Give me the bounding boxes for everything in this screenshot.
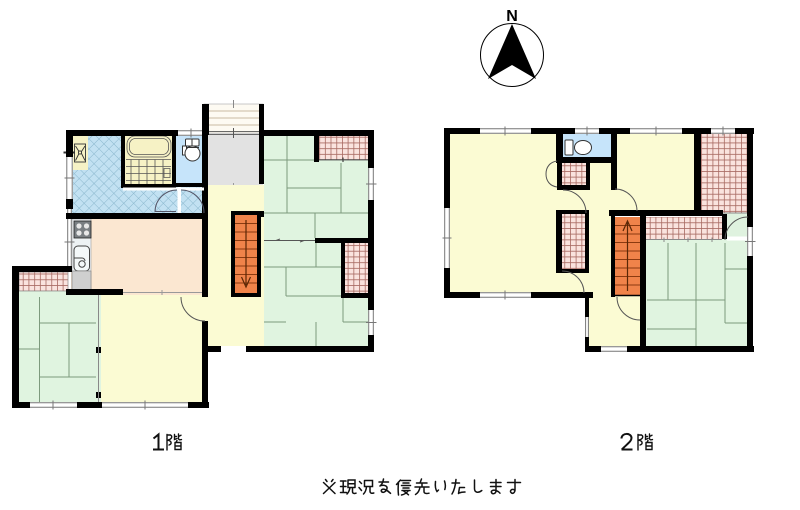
svg-text:N: N — [506, 8, 518, 25]
